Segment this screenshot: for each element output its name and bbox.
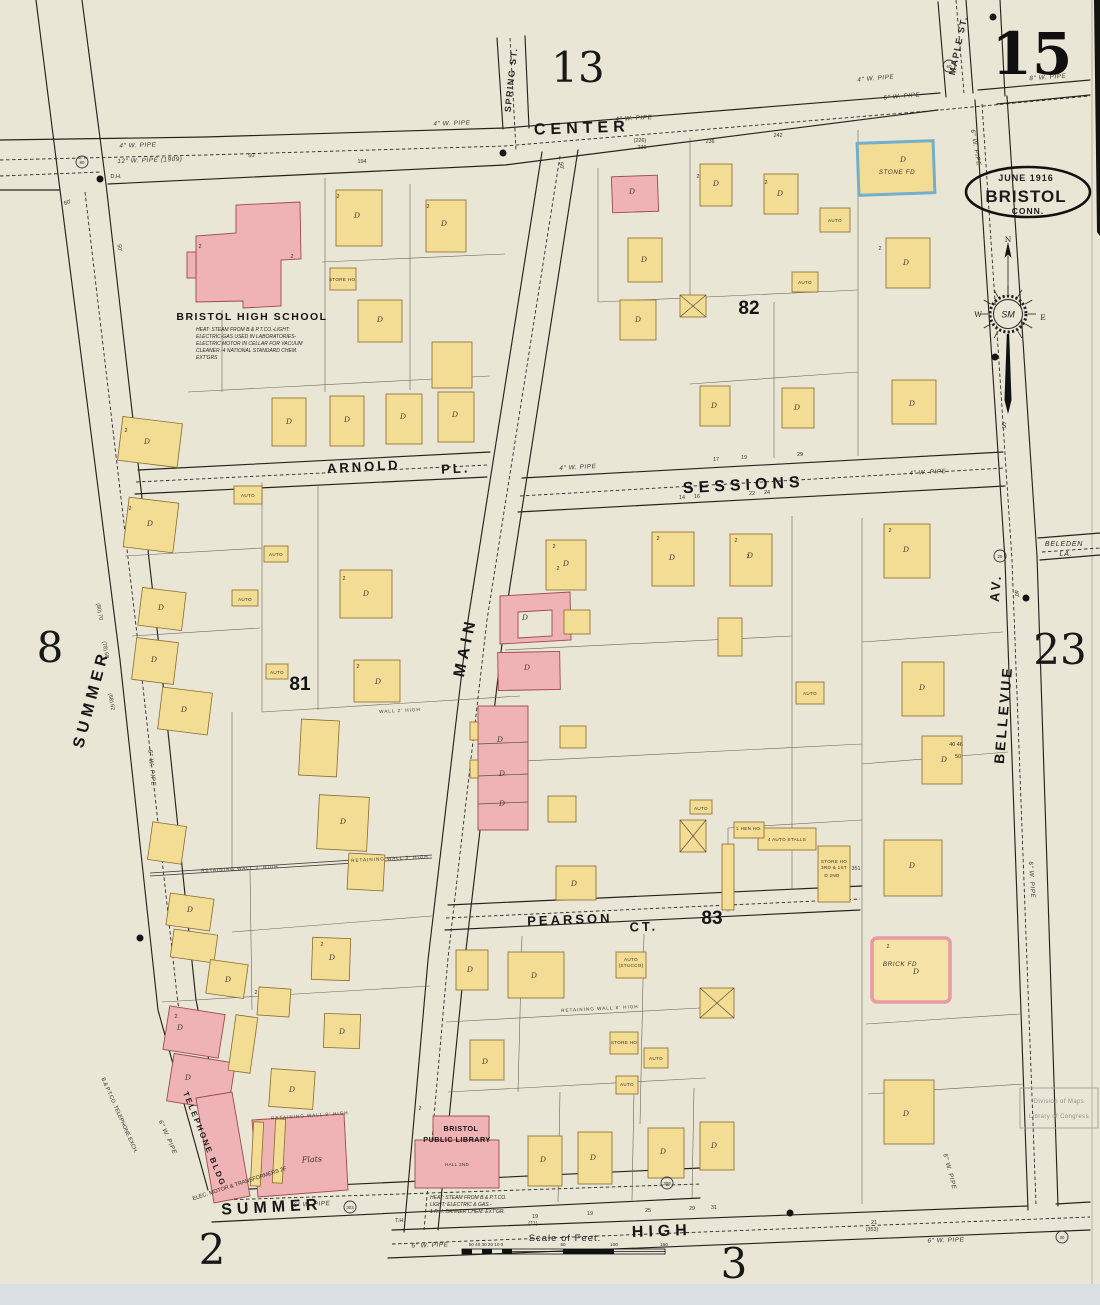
dwelling-mark: D — [440, 219, 447, 228]
outbuilding-label: AUTO — [269, 552, 283, 557]
house-number: 2 — [697, 174, 700, 180]
dwelling-mark: D — [940, 755, 947, 764]
pipe-label: 4" W. PIPE — [433, 119, 470, 127]
dwelling-mark: D — [668, 553, 675, 562]
dwelling-mark: D — [285, 417, 292, 426]
dwelling-mark: D — [659, 1147, 666, 1156]
library-note: LIGHT: ELECTRIC & GAS.- — [430, 1202, 492, 1208]
dwelling-mark: D — [157, 603, 164, 612]
outbuilding-label: AUTO — [828, 218, 842, 223]
loc-stamp-line2: Library of Congress — [1029, 1114, 1089, 1120]
title-city: BRISTOL — [985, 187, 1066, 206]
high-school-note: ELECTRIC MOTOR IN CELLAR FOR VACUUM — [196, 341, 303, 347]
dwelling-mark: D — [353, 211, 360, 220]
title-date: June 1916 — [998, 173, 1054, 183]
house-number: 230 — [638, 145, 647, 151]
dwelling-mark: D — [150, 655, 157, 664]
outbuilding-label: STORE HO — [821, 859, 847, 864]
compass-north-label: N — [1005, 235, 1012, 244]
svg-text:80: 80 — [80, 160, 85, 165]
scale-tick-50: 50 — [560, 1242, 566, 1247]
dwelling-mark: D — [451, 410, 458, 419]
house-number: 2 — [125, 428, 128, 434]
svg-text:30: 30 — [1060, 1235, 1065, 1240]
dwelling-mark: D — [562, 559, 569, 568]
title-state: CONN. — [1012, 206, 1044, 216]
house-number: 2 — [879, 246, 882, 252]
dwelling-mark: D — [374, 677, 381, 686]
outbuilding-label: AUTO — [798, 280, 812, 285]
dwelling-mark: D — [339, 817, 346, 826]
house-number: 19 — [587, 1211, 593, 1217]
street-beleden: BELEDEN — [1045, 541, 1083, 548]
outbuilding-label: AUTO — [649, 1056, 663, 1061]
dwelling-mark: D — [640, 255, 647, 264]
scan-strip — [0, 1284, 1100, 1305]
pipe-label: 4" W. PIPE — [119, 141, 156, 149]
scale-ticks-left: 50 40 30 20 10 0 — [469, 1242, 504, 1247]
dwelling-mark: D — [143, 437, 150, 446]
adjacent-sheet-bottom: 3 — [721, 1239, 748, 1288]
dwelling-mark: D — [376, 315, 383, 324]
svg-text:29: 29 — [998, 554, 1003, 559]
building-stone-foundation — [857, 141, 935, 196]
dwelling-mark: D — [498, 799, 505, 808]
high-school-note: CLEANER.-4 NATIONAL STANDARD CHEM. — [196, 348, 297, 354]
outbuilding-label: 4 AUTO STALLS — [768, 837, 806, 842]
dwelling-mark: D — [521, 613, 528, 622]
house-number: 29 — [689, 1206, 695, 1212]
dwelling-mark: D — [498, 769, 505, 778]
pipe-label: 6" W. PIPE — [927, 1236, 964, 1244]
dwelling-mark: D — [902, 545, 909, 554]
dwelling-mark: D — [589, 1153, 596, 1162]
house-number: 2 — [765, 180, 768, 186]
outbuilding-label: AUTO — [270, 670, 284, 675]
house-number: 2 — [427, 204, 430, 210]
house-number: 17 — [713, 457, 719, 463]
dwelling-mark: D — [539, 1155, 546, 1164]
dwelling-mark: D — [710, 1141, 717, 1150]
dwelling-mark: D — [146, 519, 153, 528]
street-pearson-ct: CT. — [629, 919, 658, 935]
map-label: 50' — [557, 162, 564, 170]
dwelling-mark: D — [908, 861, 915, 870]
map-label: 50' — [116, 244, 123, 252]
high-school-note: ELECTRIC-GAS USED IN LABORATORIES- — [196, 334, 296, 340]
dwelling-mark: D — [399, 412, 406, 421]
loc-stamp-line1: Division of Maps — [1034, 1099, 1084, 1105]
dwelling-mark: D — [634, 315, 641, 324]
house-number: 40 46 — [949, 742, 963, 748]
house-number: 50 — [955, 754, 961, 760]
outbuilding-label: (STUCCO) — [619, 963, 644, 968]
outbuilding-label: AUTO — [241, 493, 255, 498]
dwelling-mark: D — [918, 683, 925, 692]
adjacent-sheet-right: 23 — [1033, 625, 1086, 674]
map-label: 40' — [1012, 590, 1019, 598]
house-number: (226) — [634, 138, 647, 144]
dwelling-mark: D — [184, 1073, 191, 1082]
outbuilding-label: AUTO — [624, 957, 638, 962]
sanborn-map-sheet: SM N W E S June 1916 BRISTOL CONN. 15 13… — [0, 0, 1100, 1305]
house-number: 242 — [774, 133, 783, 139]
house-number: 2 — [557, 566, 560, 572]
block-number-83: 83 — [701, 908, 722, 929]
building-flats — [252, 1114, 348, 1197]
scale-tick-100: 100 — [610, 1242, 618, 1247]
dwelling-mark: D — [176, 1023, 183, 1032]
house-number: 2 — [321, 942, 324, 948]
dwelling-mark: D — [328, 953, 335, 962]
dwelling-mark: D — [523, 663, 530, 672]
outbuilding-label: STORE HO — [611, 1040, 637, 1045]
svg-text:303: 303 — [346, 1205, 354, 1210]
outbuilding-label: AUTO — [694, 806, 708, 811]
outbuilding-label: 1 HEN HO. — [736, 826, 762, 831]
house-number: 14 — [679, 495, 685, 501]
street-arnold-pl: PL. — [441, 460, 471, 477]
dwelling-mark: D — [628, 187, 635, 196]
house-number: (353) — [866, 1227, 879, 1233]
dwelling-mark: D — [793, 403, 800, 412]
svg-text:309: 309 — [663, 1181, 671, 1186]
outbuilding-label: AUTO — [803, 691, 817, 696]
building-brick-foundation — [872, 938, 950, 1002]
dwelling-mark: D — [224, 975, 231, 984]
pipe-label: BRICK FD — [883, 961, 917, 968]
compass-west-label: W — [974, 310, 982, 319]
house-number: 2 — [419, 1106, 422, 1112]
house-number: 2 — [657, 536, 660, 542]
outbuilding-label: HALL 2ND — [445, 1162, 470, 1167]
house-number: 236 — [706, 139, 715, 145]
house-number: 194 — [358, 159, 367, 165]
adjacent-sheet-left: 8 — [37, 623, 64, 672]
house-number: 2 — [735, 538, 738, 544]
dwelling-mark: D — [902, 1109, 909, 1118]
house-number: 2 — [175, 1014, 178, 1020]
house-number: 21 — [871, 1220, 877, 1226]
house-number: 2 — [255, 990, 258, 996]
library-label-2: PUBLIC LIBRARY — [423, 1135, 490, 1144]
library-note: 1 R.H. BANNER CHEM. EXT'GR. — [430, 1209, 505, 1215]
svg-text:60: 60 — [947, 64, 952, 69]
adjacent-sheet-top: 13 — [551, 43, 604, 92]
house-number: 19 — [532, 1214, 538, 1220]
house-number: 2 — [357, 664, 360, 670]
map-label: T.H. — [395, 1218, 405, 1224]
high-school-note: HEAT: STEAM FROM B.& P.T.CO.-LIGHT: — [196, 327, 291, 333]
compass-south-label: S — [1001, 421, 1006, 430]
house-number: 2 — [199, 244, 202, 250]
compass-monogram: SM — [1001, 310, 1015, 320]
dwelling-mark: D — [908, 399, 915, 408]
library-label-1: BRISTOL — [444, 1124, 479, 1133]
map-label: 50' — [248, 153, 256, 159]
dwelling-mark: D — [570, 879, 577, 888]
dwelling-mark: D — [186, 905, 193, 914]
library-note: HEAT: STEAM FROM B.& P.T.CO. — [430, 1195, 507, 1201]
block-number-81: 81 — [289, 674, 311, 695]
flats-label: Flats — [301, 1154, 323, 1164]
dwelling-mark: D — [712, 179, 719, 188]
dwelling-mark: D — [899, 155, 906, 164]
outbuilding-label: STORE HO. — [329, 277, 357, 282]
house-number: 2 — [889, 528, 892, 534]
house-number: 2 — [337, 194, 340, 200]
map-canvas: SM N W E S June 1916 BRISTOL CONN. 15 13… — [0, 0, 1100, 1305]
dwelling-mark: D — [481, 1057, 488, 1066]
house-number: 2 — [343, 576, 346, 582]
dwelling-mark: D — [902, 258, 909, 267]
high-school-label: BRISTOL HIGH SCHOOL — [176, 311, 327, 323]
block-number-82: 82 — [738, 298, 759, 319]
compass-east-label: E — [1040, 313, 1045, 322]
street-high: HIGH — [632, 1222, 693, 1241]
house-number: 22 — [749, 491, 755, 497]
house-number: 2 — [291, 254, 294, 260]
house-number: 351 — [852, 866, 861, 872]
house-number: 31 — [711, 1205, 717, 1211]
dwelling-mark: D — [338, 1027, 345, 1036]
dwelling-mark: D — [530, 971, 537, 980]
house-number: 24 — [764, 490, 770, 496]
house-number: 19 — [741, 455, 747, 461]
street-pearson: PEARSON — [527, 911, 613, 929]
adjacent-sheet-bottom-left: 2 — [199, 1225, 226, 1274]
dwelling-mark: D — [466, 965, 473, 974]
dwelling-mark: D — [912, 967, 919, 976]
pipe-label: STONE FD — [879, 169, 916, 176]
house-number: 2 — [887, 944, 890, 950]
house-number: 2 — [129, 506, 132, 512]
dwelling-mark: D — [776, 189, 783, 198]
map-label: D.H. — [111, 174, 122, 180]
house-number: 25 — [645, 1208, 651, 1214]
outbuilding-label: 3RD & 1ST — [821, 865, 847, 870]
house-number: 2 — [553, 544, 556, 550]
dwelling-mark: D — [180, 705, 187, 714]
outbuilding-label: AUTO — [238, 597, 252, 602]
dwelling-mark: D — [496, 735, 503, 744]
outbuilding-label: AUTO — [620, 1082, 634, 1087]
outbuilding-label: D 2ND — [824, 873, 840, 878]
dwelling-mark: D — [362, 589, 369, 598]
dwelling-mark: D — [710, 401, 717, 410]
house-number: 16 — [694, 494, 700, 500]
pipe-label: 6" W. PIPE — [411, 1241, 448, 1249]
street-bellevue-av: AV. — [987, 573, 1004, 603]
scale-tick-150: 150 — [660, 1242, 668, 1247]
house-number: 29 — [797, 452, 803, 458]
house-number: (11) — [528, 1221, 537, 1227]
street-beleden-la: LA. — [1060, 551, 1073, 558]
dwelling-mark: D — [288, 1085, 295, 1094]
high-school-note: EXT'GRS — [196, 355, 218, 361]
dwelling-mark: D — [343, 415, 350, 424]
house-number: 2 — [747, 554, 750, 560]
